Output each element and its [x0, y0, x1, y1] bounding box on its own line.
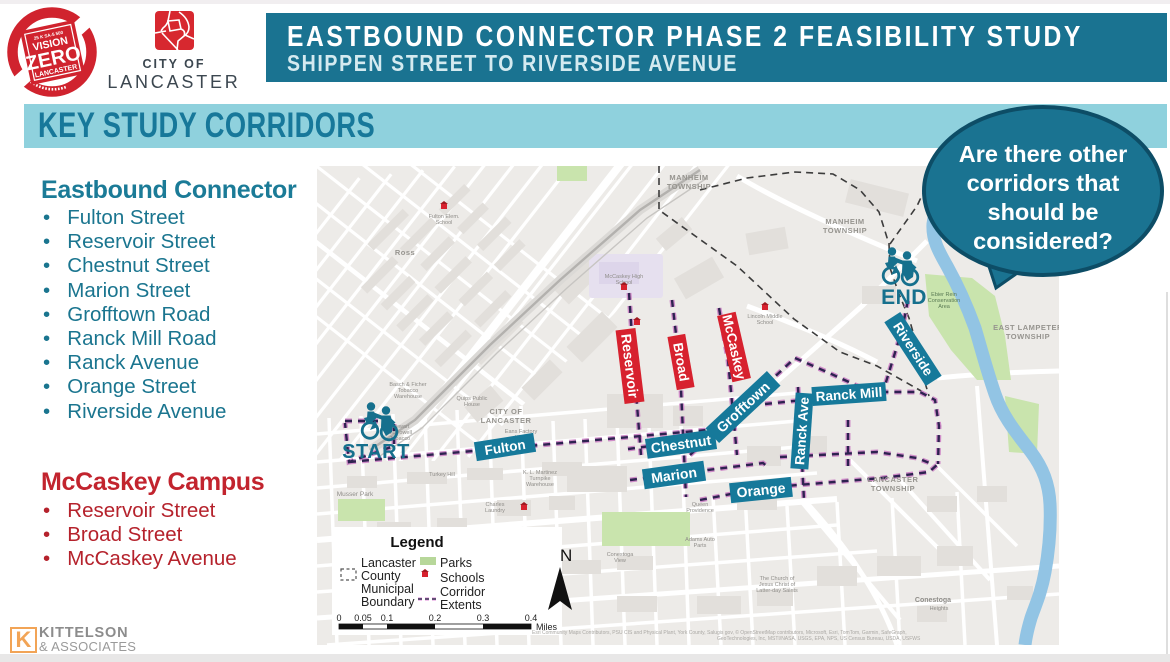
svg-text:TOWNSHIP: TOWNSHIP [823, 226, 867, 235]
svg-text:GeoTechnologies, Inc, MSTI/NAS: GeoTechnologies, Inc, MSTI/NASA, USGS, E… [717, 636, 921, 642]
svg-text:0.05: 0.05 [354, 613, 372, 623]
svg-text:LANCASTER: LANCASTER [868, 475, 919, 484]
svg-text:TOWNSHIP: TOWNSHIP [1006, 332, 1050, 341]
svg-text:Municipal: Municipal [361, 582, 414, 596]
svg-text:Schools: Schools [440, 571, 484, 585]
svg-text:Parts: Parts [694, 543, 707, 549]
svg-text:considered?: considered? [973, 228, 1113, 254]
svg-text:EAST LAMPETER: EAST LAMPETER [993, 323, 1059, 332]
svg-text:Warehouse: Warehouse [526, 482, 554, 488]
svg-text:Latter-day Saints: Latter-day Saints [756, 588, 798, 594]
svg-text:Turkey Hill: Turkey Hill [429, 472, 455, 478]
svg-text:Parks: Parks [440, 556, 472, 570]
svg-text:Are there other: Are there other [959, 141, 1127, 167]
svg-text:School: School [436, 220, 453, 226]
svg-text:Providence: Providence [686, 508, 714, 514]
svg-text:0.3: 0.3 [477, 613, 490, 623]
svg-text:CITY OF: CITY OF [142, 57, 205, 71]
svg-text:LANCASTER: LANCASTER [107, 72, 240, 92]
svg-text:START: START [342, 441, 410, 463]
svg-text:LANCASTER: LANCASTER [481, 416, 532, 425]
svg-text:Extents: Extents [440, 598, 482, 612]
svg-text:Heights: Heights [930, 606, 949, 612]
svg-text:should be: should be [988, 199, 1099, 225]
svg-text:View: View [614, 558, 626, 564]
svg-text:Lancaster: Lancaster [361, 556, 416, 570]
svg-text:House: House [464, 402, 480, 408]
svg-text:0.2: 0.2 [429, 613, 442, 623]
svg-text:CITY OF: CITY OF [490, 407, 523, 416]
svg-text:School: School [757, 320, 774, 326]
svg-text:County: County [361, 569, 401, 583]
svg-text:Ross: Ross [395, 248, 415, 257]
svg-text:0.1: 0.1 [381, 613, 394, 623]
svg-text:Legend: Legend [390, 534, 443, 551]
svg-text:N: N [560, 546, 572, 565]
svg-text:TOWNSHIP: TOWNSHIP [871, 484, 915, 493]
svg-text:Musser Park: Musser Park [337, 491, 374, 498]
svg-text:Boundary: Boundary [361, 595, 415, 609]
svg-text:Corridor: Corridor [440, 585, 485, 599]
svg-text:MANHEIM: MANHEIM [669, 173, 708, 182]
svg-text:0: 0 [336, 613, 341, 623]
svg-text:MANHEIM: MANHEIM [825, 217, 864, 226]
svg-text:corridors that: corridors that [967, 170, 1120, 196]
svg-text:Laundry: Laundry [485, 508, 505, 514]
svg-text:Conestoga: Conestoga [915, 597, 951, 604]
svg-text:Esri Community Maps Contributo: Esri Community Maps Contributors, PSU CI… [532, 629, 907, 636]
svg-text:TOWNSHIP: TOWNSHIP [667, 182, 711, 191]
svg-text:Warehouse: Warehouse [394, 394, 422, 400]
